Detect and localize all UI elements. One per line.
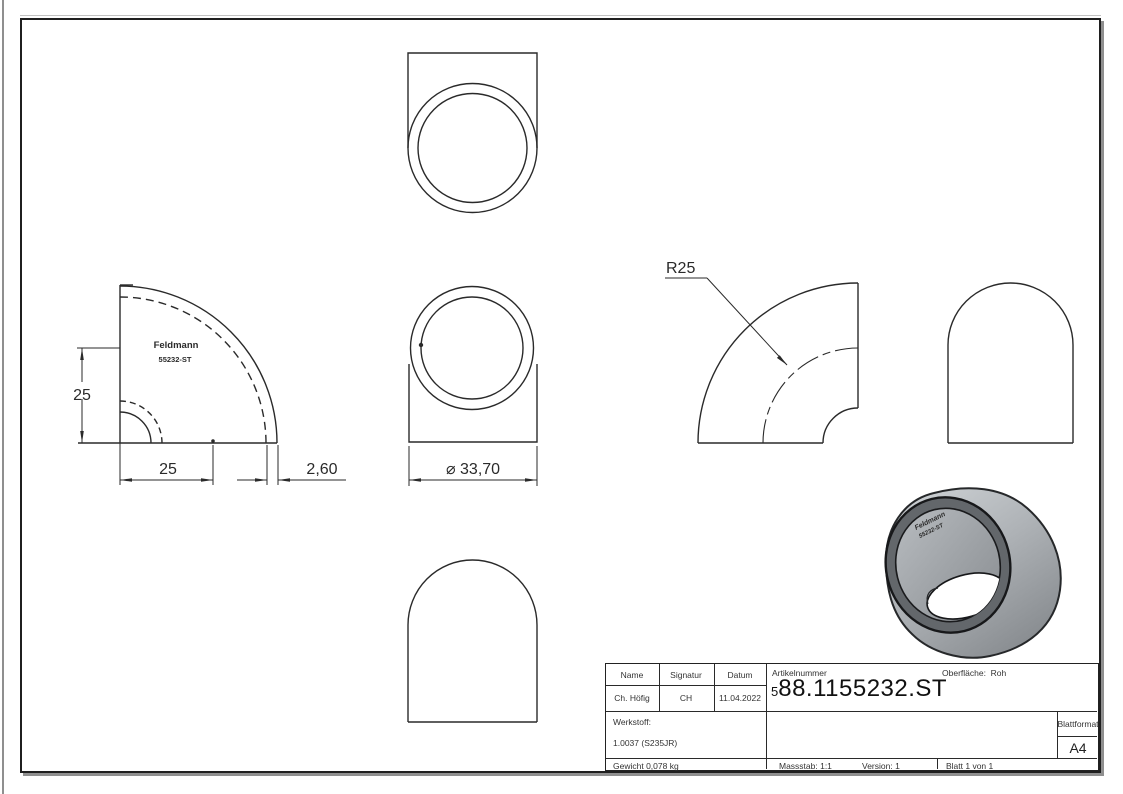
front-seam-dot [419, 343, 423, 347]
bend-inner-arc [823, 408, 858, 443]
dim-r25-arrow [777, 355, 787, 365]
tb-header-signatur: Signatur [670, 670, 702, 680]
front-body-outline [409, 364, 537, 442]
view-bend: R25 [650, 245, 880, 457]
tb-line [606, 685, 766, 686]
tb-blattformat-label: Blattformat [1057, 719, 1098, 729]
tb-werkstoff-value: 1.0037 (S235JR) [613, 738, 677, 748]
side-outer-arc [120, 286, 277, 443]
tb-line [937, 758, 938, 769]
view-side: Feldmann 55232-ST 25 25 2,60 [55, 275, 365, 495]
tb-werkstoff-label: Werkstoff: [613, 717, 651, 727]
tb-line [766, 664, 767, 769]
side-inner-arc [120, 412, 151, 443]
tb-value-datum: 11.04.2022 [719, 693, 761, 703]
tb-header-datum: Datum [727, 670, 752, 680]
view-dome-right [940, 278, 1080, 450]
tb-header-name: Name [621, 670, 644, 680]
dim-dia-text: ⌀ 33,70 [446, 461, 500, 478]
dim-v25-text: 25 [73, 387, 91, 404]
tb-artikelnummer-prefix: 5 [771, 684, 778, 699]
dome-right-outline [948, 283, 1073, 443]
drawing-sheet: Feldmann 55232-ST 25 25 2,60 [0, 0, 1123, 794]
dim-h25-text: 25 [159, 461, 177, 478]
view-front: ⌀ 33,70 [400, 278, 550, 492]
dim-wall-arrow-right [278, 478, 290, 482]
tb-blatt: Blatt 1 von 1 [946, 761, 993, 771]
dim-r25-leader [707, 278, 787, 365]
view-top [400, 45, 550, 217]
tb-artikelnummer-value: 588.1155232.ST [771, 675, 947, 703]
tb-blattformat-value: A4 [1069, 740, 1086, 756]
dim-h25-arrow-right [201, 478, 213, 482]
tb-version: Version: 1 [862, 761, 900, 771]
frame-shadow-top [20, 15, 1101, 16]
top-view-outer-circle [408, 84, 537, 213]
dim-h25-arrow-left [120, 478, 132, 482]
dim-wall-text: 2,60 [306, 461, 337, 478]
front-outer-circle [411, 287, 534, 410]
front-inner-circle [421, 297, 523, 399]
dome-bottom-outline [408, 560, 537, 722]
tb-gewicht: Gewicht 0,078 kg [613, 761, 679, 771]
part-stamp-line2: 55232-ST [159, 355, 192, 364]
dim-wall-arrow-left [255, 478, 267, 482]
tb-oberflaeche: Oberfläche: Roh [942, 668, 1006, 678]
tb-artikelnummer-number: 88.1155232.ST [778, 675, 947, 703]
page-edge-line [2, 0, 4, 794]
bend-centerline-arc [763, 348, 858, 443]
dim-dia-arrow-left [409, 478, 421, 482]
dim-dia-arrow-right [525, 478, 537, 482]
render-3d: Feldmann 55232-ST [870, 476, 1085, 668]
dim-v25-arrow-bottom [80, 431, 84, 443]
dim-v25-arrow-top [80, 348, 84, 360]
tb-line [659, 664, 660, 711]
centerline-dot [211, 439, 215, 443]
tb-line [606, 758, 1097, 759]
tb-line [1057, 736, 1097, 737]
tb-value-name: Ch. Höfig [614, 693, 649, 703]
tb-line [606, 711, 1097, 712]
top-view-inner-circle [418, 94, 527, 203]
tb-line [714, 664, 715, 711]
dim-r25-text: R25 [666, 260, 695, 277]
tb-massstab: Massstab: 1:1 [779, 761, 832, 771]
bend-outer-arc [698, 283, 858, 443]
top-view-outline [408, 53, 537, 148]
tb-value-signatur: CH [680, 693, 692, 703]
part-stamp-line1: Feldmann [154, 340, 199, 351]
view-dome-bottom [400, 555, 545, 727]
title-block: Name Signatur Datum Ch. Höfig CH 11.04.2… [605, 663, 1099, 771]
side-hidden-inner-arc [120, 401, 162, 443]
